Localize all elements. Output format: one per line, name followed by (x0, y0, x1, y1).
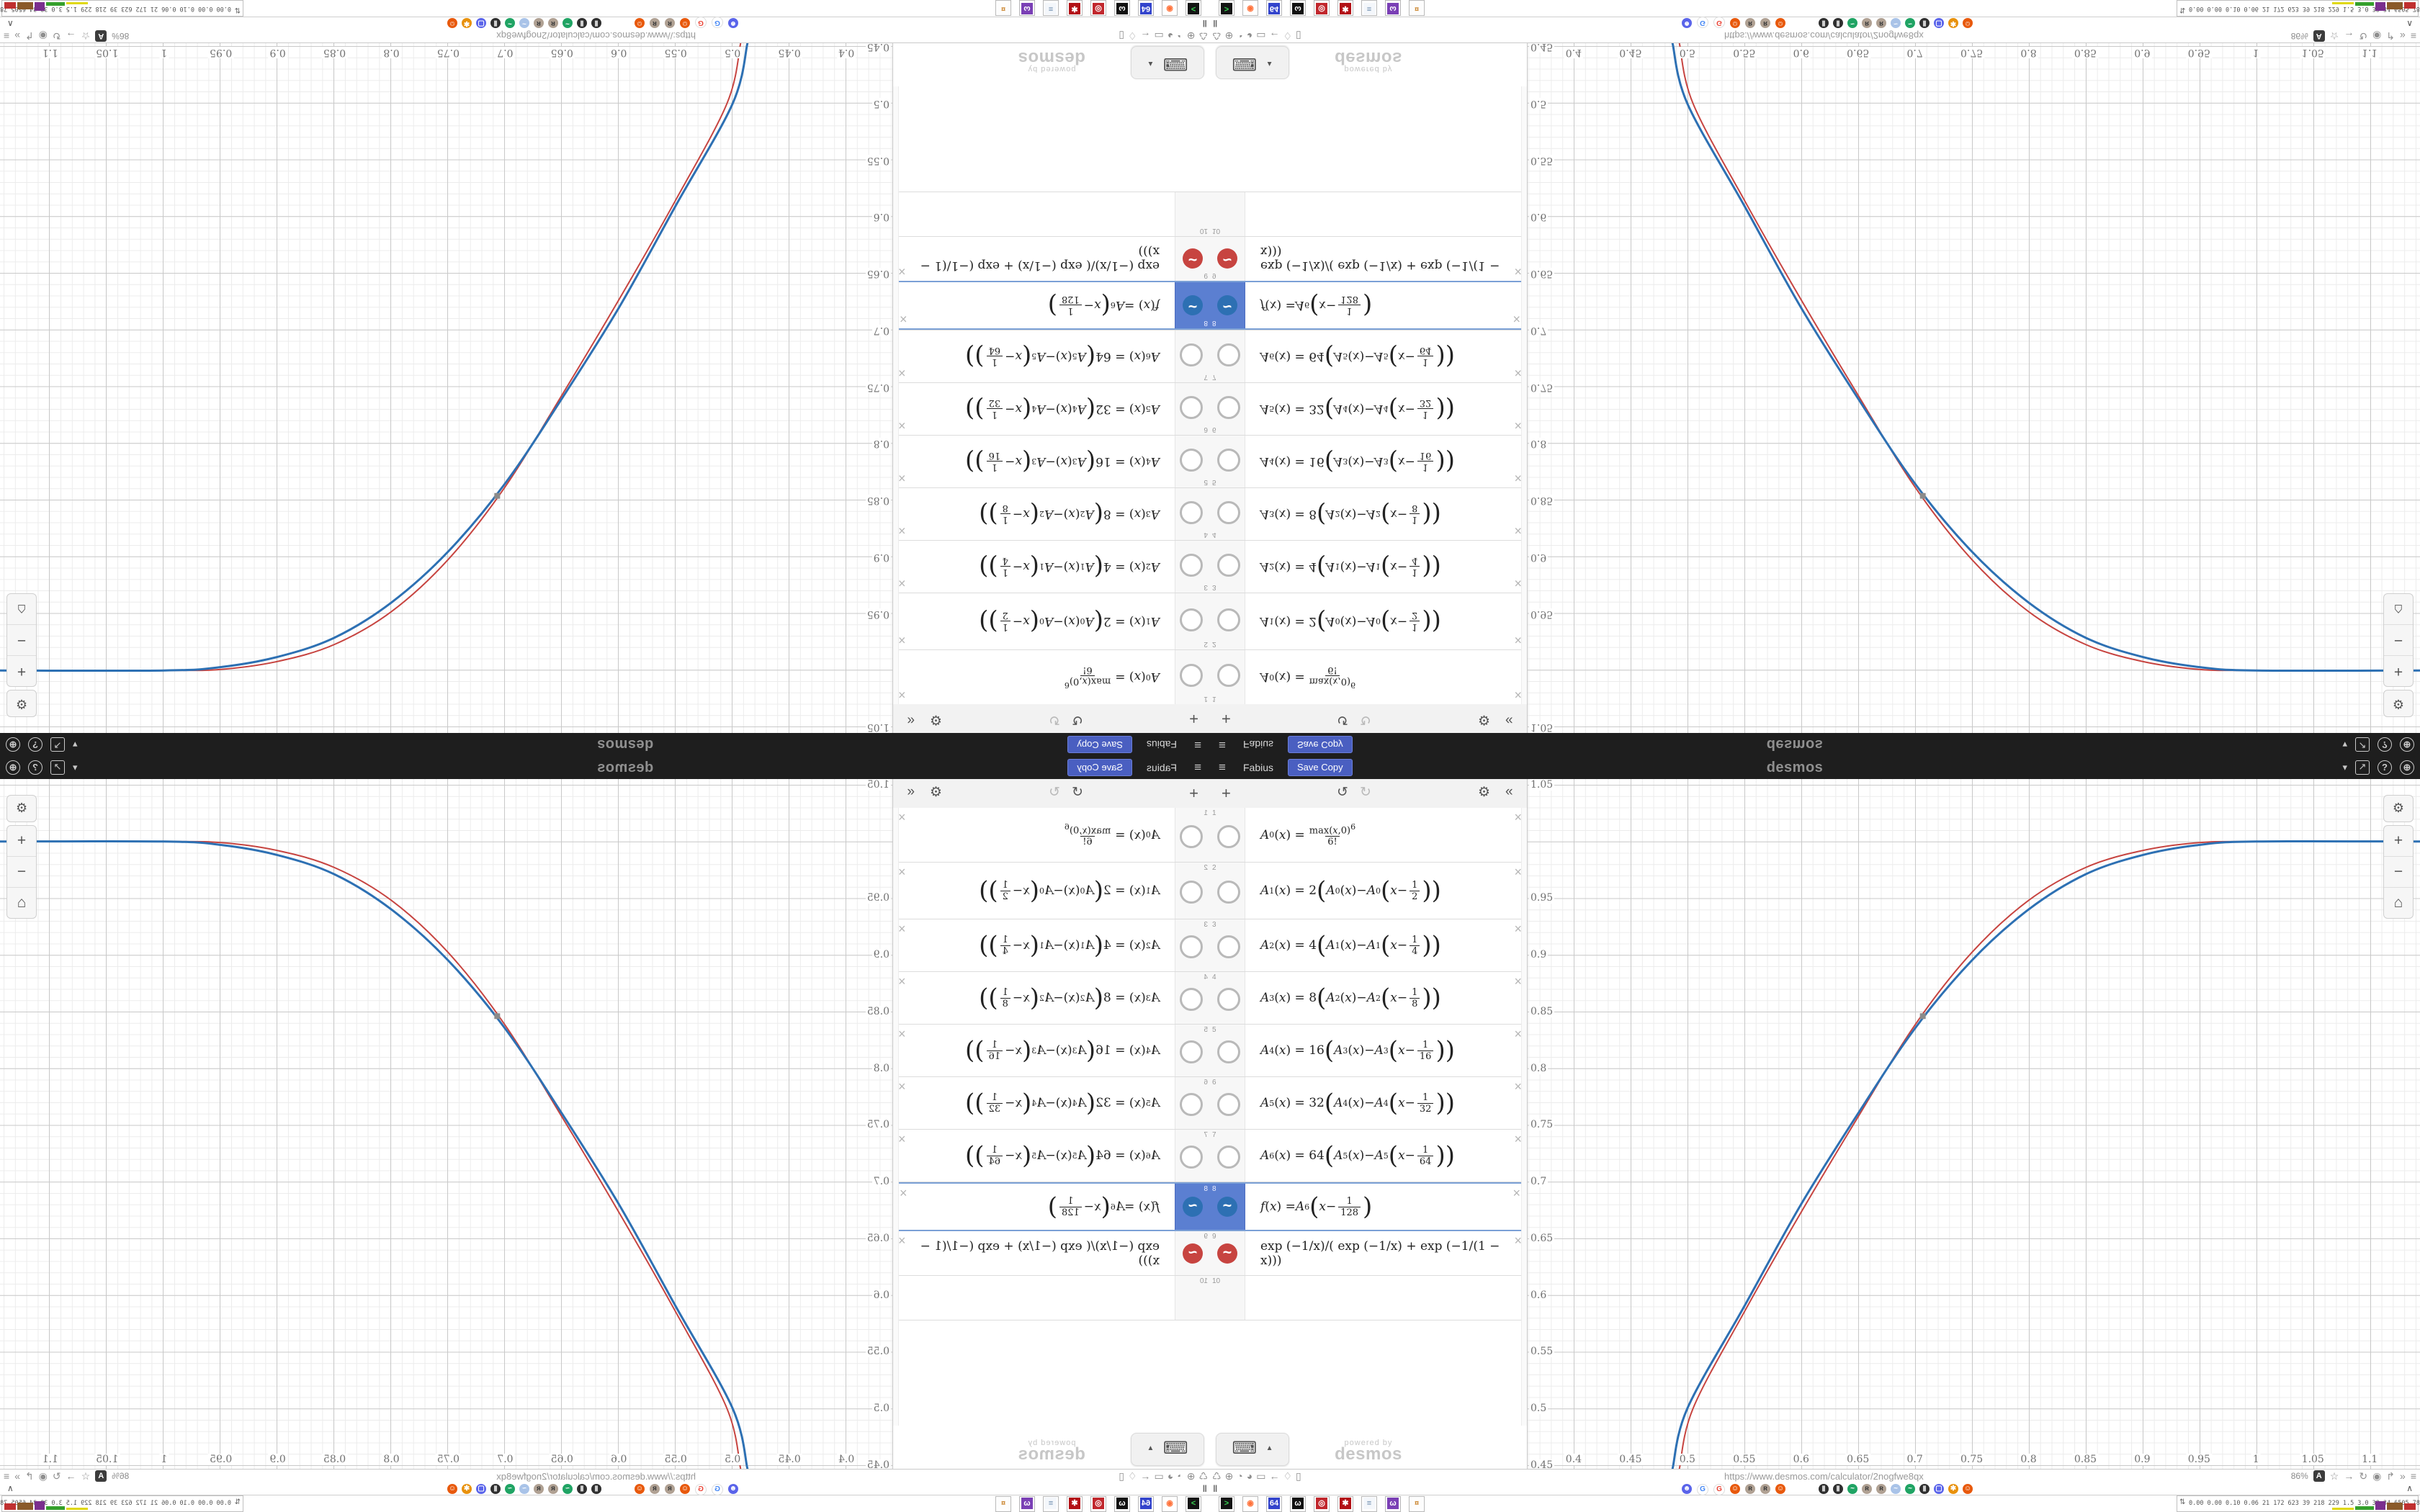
gauge-icon[interactable]: ◔ (1237, 1470, 1242, 1482)
expression-row-1[interactable]: 1A0(x) = max(x,0)66!× (893, 808, 1210, 863)
visibility-toggle-icon[interactable] (1217, 501, 1240, 524)
bin-favicon[interactable]: ▮ (1819, 1484, 1829, 1494)
expression-row-8[interactable]: 8~f (x) = A6(x − 1128)× (1210, 1182, 1527, 1231)
gauge-icon[interactable]: ◕ (1247, 1470, 1252, 1482)
globe-icon[interactable]: ⊕ (6, 737, 20, 752)
help-icon[interactable]: ? (2378, 737, 2392, 752)
translate-icon[interactable]: A (95, 1470, 107, 1482)
zoom-in-button[interactable]: + (7, 656, 36, 686)
add-expression-button[interactable]: + (1222, 709, 1231, 728)
expression-content[interactable] (1245, 192, 1505, 236)
notepad-app-icon[interactable]: ≡ (1043, 0, 1059, 16)
visibility-toggle-icon[interactable] (1180, 988, 1203, 1011)
globe-icon[interactable]: ⊕ (2400, 760, 2414, 775)
expression-content[interactable]: A6(x) = 64(A5(x)−A5(x − 164)) (915, 1130, 1175, 1182)
point-marker[interactable] (1920, 493, 1926, 499)
visibility-toggle-icon[interactable] (1217, 608, 1240, 631)
terminal-app-icon[interactable]: > (1219, 0, 1234, 16)
expression-content[interactable]: f (x) = A6(x − 1128) (1245, 282, 1504, 328)
discord-favicon[interactable]: ☻ (1682, 1484, 1692, 1494)
visibility-toggle-icon[interactable] (1180, 881, 1203, 904)
lock-icon[interactable]: ▯ (1119, 1470, 1124, 1482)
cat-bw-app-icon[interactable]: ω (1114, 1496, 1130, 1512)
add-expression-button[interactable]: + (1189, 709, 1198, 728)
delete-expression-button[interactable]: × (898, 976, 906, 986)
expression-row-1[interactable]: 1A0(x) = max(x,0)66!× (1210, 649, 1527, 704)
visibility-toggle-icon[interactable] (1180, 396, 1203, 419)
translate-icon[interactable]: A (2313, 30, 2325, 42)
raccoon-favicon[interactable]: ʀ (548, 18, 558, 28)
expression-content[interactable]: A6(x) = 64(A5(x)−A5(x − 164)) (1245, 330, 1505, 382)
reload-icon[interactable]: ↻ (2359, 30, 2367, 42)
expression-content[interactable]: A5(x) = 32(A4(x)−A4(x − 132)) (915, 1077, 1175, 1129)
visibility-toggle-icon[interactable]: ~ (1217, 1197, 1237, 1217)
desmos-favicon[interactable]: ~ (505, 1484, 515, 1494)
star-icon[interactable]: ☆ (81, 30, 91, 42)
expression-row-3[interactable]: 3A2(x) = 4(A1(x)−A1(x − 14))× (1210, 540, 1527, 593)
expression-content[interactable]: A3(x) = 8(A2(x)−A2(x − 18)) (915, 972, 1175, 1024)
terminal-app-icon[interactable]: > (1186, 0, 1201, 16)
graph-canvas[interactable]: 0.40.450.50.550.60.650.70.750.80.850.90.… (1528, 779, 2420, 1469)
pause-icon[interactable]: ‖ (1202, 1483, 1207, 1494)
zoom-home-button[interactable]: ⌂ (2384, 594, 2413, 625)
sun-gear-favicon[interactable]: ✱ (462, 18, 472, 28)
star-icon[interactable]: ☆ (81, 1470, 91, 1482)
visibility-toggle-icon[interactable]: ~ (1183, 1197, 1203, 1217)
expression-content[interactable]: A0(x) = max(x,0)66! (1245, 650, 1505, 704)
expression-row-1[interactable]: 1A0(x) = max(x,0)66!× (1210, 808, 1527, 863)
globe-dark-icon[interactable]: ◉ (39, 30, 48, 42)
google-favicon[interactable]: G (1713, 17, 1725, 28)
menu-icon[interactable]: ≡ (4, 1470, 9, 1482)
visibility-toggle-icon[interactable] (1217, 343, 1240, 366)
bird-favicon[interactable]: ~ (1891, 18, 1901, 28)
keyboard-toggle-button[interactable]: ⌨ ▲ (1131, 46, 1204, 79)
menu-icon[interactable]: ≡ (2411, 30, 2416, 42)
visibility-toggle-icon[interactable] (1180, 449, 1203, 472)
delete-expression-button[interactable]: × (898, 1134, 906, 1144)
chat-favicon[interactable]: ▢ (476, 18, 486, 28)
desmos-favicon[interactable]: ~ (1847, 18, 1857, 28)
expression-content[interactable]: A2(x) = 4(A1(x)−A1(x − 14)) (1245, 919, 1505, 971)
expression-content[interactable]: A4(x) = 16(A3(x)−A3(x − 116)) (1245, 1025, 1505, 1076)
visibility-toggle-icon[interactable]: ~ (1183, 249, 1203, 269)
expression-row-3[interactable]: 3A2(x) = 4(A1(x)−A1(x − 14))× (1210, 919, 1527, 972)
visibility-toggle-icon[interactable] (1180, 1146, 1203, 1169)
expression-content[interactable]: A2(x) = 4(A1(x)−A1(x − 14)) (915, 541, 1175, 593)
forward-arrow-icon[interactable]: → (66, 30, 76, 42)
expression-row-10[interactable]: 10 (893, 1276, 1210, 1320)
expression-content[interactable]: A6(x) = 64(A5(x)−A5(x − 164)) (1245, 1130, 1505, 1182)
gauge-icon[interactable]: ◔ (1237, 30, 1242, 42)
keyboard-toggle-button[interactable]: ⌨ ▲ (1216, 46, 1289, 79)
tabbar-collapse-icon[interactable]: ∧ (2406, 1483, 2413, 1493)
forward-arrow-icon[interactable]: → (2344, 30, 2354, 42)
delete-expression-button[interactable]: × (898, 578, 906, 588)
share-icon[interactable]: ↱ (25, 30, 34, 42)
visibility-toggle-icon[interactable] (1217, 396, 1240, 419)
expression-content[interactable]: A4(x) = 16(A3(x)−A3(x − 116)) (1245, 436, 1505, 487)
add-expression-button[interactable]: + (1189, 784, 1198, 803)
delete-expression-button[interactable]: × (898, 1029, 906, 1039)
floppy64-app-icon[interactable]: 64 (1266, 0, 1282, 16)
purple-cat-app-icon[interactable]: ω (1385, 1496, 1401, 1512)
raccoon-favicon[interactable]: ʀ (1760, 1484, 1770, 1494)
reload-icon[interactable]: ↻ (2359, 1470, 2367, 1482)
globe-icon[interactable]: ⊕ (6, 760, 20, 775)
zoom-out-button[interactable]: − (2384, 856, 2413, 887)
delete-expression-button[interactable]: × (898, 266, 906, 276)
chat-favicon[interactable]: ▢ (476, 1484, 486, 1494)
expression-row-6[interactable]: 6A5(x) = 32(A4(x)−A4(x − 132))× (893, 382, 1210, 435)
sun-gear-favicon[interactable]: ✱ (1948, 18, 1958, 28)
graph-settings-wrench-button[interactable]: ⚙ (2383, 795, 2414, 822)
curve-red[interactable] (0, 842, 740, 1469)
discord-favicon[interactable]: ☻ (728, 18, 738, 28)
zoom-out-button[interactable]: − (7, 856, 36, 887)
collapse-panel-button[interactable]: « (907, 784, 915, 800)
save-copy-button[interactable]: Save Copy (1288, 759, 1353, 776)
expression-row-2[interactable]: 2A1(x) = 2(A0(x)−A0(x − 12))× (1210, 863, 1527, 919)
pause-icon[interactable]: ‖ (1213, 18, 1218, 29)
folder-icon[interactable]: ▭ (1256, 1470, 1265, 1482)
keyboard-toggle-button[interactable]: ⌨ ▲ (1131, 1433, 1204, 1466)
undo-button[interactable]: ↺ (1337, 711, 1348, 728)
emoji-face-favicon[interactable]: ☺ (680, 18, 690, 28)
help-icon[interactable]: ? (28, 760, 42, 775)
graph-settings-gear-icon[interactable]: ⚙ (930, 711, 942, 728)
graph-settings-wrench-button[interactable]: ⚙ (2383, 690, 2414, 717)
tabbar-collapse-icon[interactable]: ∧ (7, 1483, 14, 1493)
palette-app-icon[interactable]: ¤ (995, 1496, 1011, 1512)
star-icon[interactable]: ☆ (2330, 1470, 2339, 1482)
trash-icon[interactable]: ♺ (1212, 30, 1222, 42)
expression-content[interactable]: A4(x) = 16(A3(x)−A3(x − 116)) (915, 436, 1175, 487)
bin-favicon[interactable]: ▮ (577, 18, 587, 28)
red-disc-app-icon[interactable]: ◎ (1090, 0, 1106, 16)
red-gear-app-icon[interactable]: ✱ (1067, 1496, 1083, 1512)
globe-icon[interactable]: ⊕ (1225, 30, 1234, 42)
sun-gear-favicon[interactable]: ✱ (462, 1484, 472, 1494)
gauge-icon[interactable]: ◔ (1177, 30, 1183, 42)
globe-icon[interactable]: ⊕ (1187, 30, 1196, 42)
raccoon-favicon[interactable]: ʀ (1862, 1484, 1872, 1494)
zoom-in-button[interactable]: + (2384, 826, 2413, 856)
red-disc-app-icon[interactable]: ◎ (1090, 1496, 1106, 1512)
desmos-favicon[interactable]: ~ (1905, 1484, 1915, 1494)
chevrons-icon[interactable]: » (14, 1470, 20, 1482)
delete-expression-button[interactable]: × (898, 690, 906, 700)
expression-content[interactable]: A5(x) = 32(A4(x)−A4(x − 132)) (1245, 383, 1505, 435)
visibility-toggle-icon[interactable] (1217, 1093, 1240, 1116)
shield-icon[interactable]: ♢ (1283, 1470, 1292, 1482)
curve-red[interactable] (0, 44, 740, 671)
export-icon[interactable]: ↗ (2355, 737, 2370, 752)
red-disc-app-icon[interactable]: ◎ (1314, 1496, 1330, 1512)
expression-content[interactable]: A1(x) = 2(A0(x)−A0(x − 12)) (915, 593, 1175, 649)
zoom-in-button[interactable]: + (7, 826, 36, 856)
delete-expression-button[interactable]: × (900, 1188, 907, 1198)
hamburger-menu-icon[interactable]: ≡ (1219, 761, 1226, 773)
expression-row-9[interactable]: 9~exp (−1/x)/( exp (−1/x) + exp (−1/(1 −… (893, 1231, 1210, 1276)
google-favicon[interactable]: G (1713, 1484, 1725, 1495)
expression-content[interactable]: f (x) = A6(x − 1128) (916, 1184, 1175, 1230)
palette-app-icon[interactable]: ¤ (1409, 0, 1425, 16)
back-arrow-icon[interactable]: ← (1141, 30, 1151, 42)
shield-icon[interactable]: ♢ (1128, 1470, 1137, 1482)
raccoon-favicon[interactable]: ʀ (1862, 18, 1872, 28)
trash-icon[interactable]: ♺ (1198, 30, 1208, 42)
visibility-toggle-icon[interactable] (1217, 554, 1240, 577)
caret-down-icon[interactable]: ▾ (73, 739, 78, 750)
visibility-toggle-icon[interactable] (1180, 1040, 1203, 1063)
bird-favicon[interactable]: ~ (519, 1484, 529, 1494)
terminal-app-icon[interactable]: > (1219, 1496, 1234, 1512)
terminal-app-icon[interactable]: > (1186, 1496, 1201, 1512)
lock-icon[interactable]: ▯ (1119, 30, 1124, 42)
visibility-toggle-icon[interactable] (1217, 1040, 1240, 1063)
google-favicon[interactable]: G (1697, 1484, 1708, 1495)
delete-expression-button[interactable]: × (898, 867, 906, 877)
delete-expression-button[interactable]: × (898, 635, 906, 645)
delete-expression-button[interactable]: × (898, 924, 906, 934)
collapse-panel-button[interactable]: « (1505, 784, 1513, 800)
expression-row-4[interactable]: 4A3(x) = 8(A2(x)−A2(x − 18))× (893, 972, 1210, 1025)
expression-content[interactable]: A3(x) = 8(A2(x)−A2(x − 18)) (1245, 972, 1505, 1024)
expression-content[interactable]: A1(x) = 2(A0(x)−A0(x − 12)) (1245, 593, 1505, 649)
point-marker[interactable] (1920, 1013, 1926, 1019)
visibility-toggle-icon[interactable] (1180, 825, 1203, 848)
globe-dark-icon[interactable]: ◉ (2372, 1470, 2381, 1482)
emoji-face-favicon[interactable]: ☺ (1775, 1484, 1785, 1494)
save-copy-button[interactable]: Save Copy (1067, 736, 1132, 753)
graph-settings-gear-icon[interactable]: ⚙ (930, 784, 942, 801)
point-marker[interactable] (494, 493, 500, 499)
lock-icon[interactable]: ▯ (1296, 1470, 1301, 1482)
translate-icon[interactable]: A (2313, 1470, 2325, 1482)
emoji-face-favicon[interactable]: ☺ (1730, 1484, 1740, 1494)
export-icon[interactable]: ↗ (50, 737, 65, 752)
firefox-app-icon[interactable]: ◉ (1162, 0, 1178, 16)
curve-blue[interactable] (0, 841, 748, 1468)
visibility-toggle-icon[interactable]: ~ (1217, 1243, 1237, 1264)
trash-icon[interactable]: ♺ (1198, 1470, 1208, 1482)
notepad-app-icon[interactable]: ≡ (1361, 1496, 1377, 1512)
expression-row-6[interactable]: 6A5(x) = 32(A4(x)−A4(x − 132))× (1210, 382, 1527, 435)
expression-content[interactable]: exp (−1/x)/( exp (−1/x) + exp (−1/(1 − x… (915, 1231, 1175, 1275)
delete-expression-button[interactable]: × (898, 473, 906, 483)
redo-button[interactable]: ↻ (1049, 784, 1060, 801)
palette-app-icon[interactable]: ¤ (995, 0, 1011, 16)
back-arrow-icon[interactable]: ← (1141, 1470, 1151, 1482)
expression-row-5[interactable]: 5A4(x) = 16(A3(x)−A3(x − 116))× (893, 435, 1210, 487)
expression-content[interactable]: exp (−1/x)/( exp (−1/x) + exp (−1/(1 − x… (915, 237, 1175, 281)
red-gear-app-icon[interactable]: ✱ (1337, 1496, 1353, 1512)
expression-content[interactable]: A4(x) = 16(A3(x)−A3(x − 116)) (915, 1025, 1175, 1076)
raccoon-favicon[interactable]: ʀ (534, 18, 544, 28)
expression-row-10[interactable]: 10 (893, 192, 1210, 236)
red-gear-app-icon[interactable]: ✱ (1337, 0, 1353, 16)
bin-favicon[interactable]: ▮ (1919, 1484, 1930, 1494)
expression-content[interactable]: A1(x) = 2(A0(x)−A0(x − 12)) (1245, 863, 1505, 919)
expression-row-7[interactable]: 7A6(x) = 64(A5(x)−A5(x − 164))× (1210, 1130, 1527, 1182)
bin-favicon[interactable]: ▮ (490, 18, 501, 28)
visibility-toggle-icon[interactable] (1217, 935, 1240, 958)
shield-icon[interactable]: ♢ (1128, 30, 1137, 42)
caret-down-icon[interactable]: ▾ (2342, 762, 2347, 773)
expression-row-8[interactable]: 8~f (x) = A6(x − 1128)× (1210, 281, 1527, 330)
bin-favicon[interactable]: ▮ (591, 18, 601, 28)
expression-row-10[interactable]: 10 (1210, 192, 1527, 236)
globe-dark-icon[interactable]: ◉ (2372, 30, 2381, 42)
expression-row-6[interactable]: 6A5(x) = 32(A4(x)−A4(x − 132))× (1210, 1077, 1527, 1130)
redo-button[interactable]: ↻ (1360, 784, 1371, 801)
visibility-toggle-icon[interactable] (1180, 665, 1203, 688)
zoom-home-button[interactable]: ⌂ (2384, 887, 2413, 918)
google-favicon[interactable]: G (1697, 17, 1708, 28)
expression-row-10[interactable]: 10 (1210, 1276, 1527, 1320)
delete-expression-button[interactable]: × (898, 526, 906, 536)
raccoon-favicon[interactable]: ʀ (1876, 18, 1886, 28)
expression-row-4[interactable]: 4A3(x) = 8(A2(x)−A2(x − 18))× (1210, 972, 1527, 1025)
floppy64-app-icon[interactable]: 64 (1138, 0, 1154, 16)
delete-expression-button[interactable]: × (898, 420, 906, 431)
delete-expression-button[interactable]: × (898, 368, 906, 378)
star-icon[interactable]: ☆ (2330, 30, 2339, 42)
bin-favicon[interactable]: ▮ (577, 1484, 587, 1494)
folder-icon[interactable]: ▭ (1256, 30, 1265, 42)
raccoon-favicon[interactable]: ʀ (1760, 18, 1770, 28)
help-icon[interactable]: ? (2378, 760, 2392, 775)
panel-scrollbar[interactable] (1521, 808, 1527, 1426)
hamburger-menu-icon[interactable]: ≡ (1194, 761, 1201, 773)
bin-favicon[interactable]: ▮ (490, 1484, 501, 1494)
panel-scrollbar[interactable] (893, 808, 899, 1426)
expression-content[interactable]: A6(x) = 64(A5(x)−A5(x − 164)) (915, 330, 1175, 382)
raccoon-favicon[interactable]: ʀ (1745, 1484, 1755, 1494)
gauge-icon[interactable]: ◔ (1177, 1470, 1183, 1482)
firefox-app-icon[interactable]: ◉ (1162, 1496, 1178, 1512)
expression-row-9[interactable]: 9~exp (−1/x)/( exp (−1/x) + exp (−1/(1 −… (1210, 1231, 1527, 1276)
point-marker[interactable] (494, 1013, 500, 1019)
redo-button[interactable]: ↻ (1049, 711, 1060, 728)
zoom-out-button[interactable]: − (7, 625, 36, 656)
bin-favicon[interactable]: ▮ (1833, 1484, 1843, 1494)
expression-row-3[interactable]: 3A2(x) = 4(A1(x)−A1(x − 14))× (893, 919, 1210, 972)
tabbar-collapse-icon[interactable]: ∧ (2406, 19, 2413, 29)
emoji-face-favicon[interactable]: ☺ (1730, 18, 1740, 28)
bin-favicon[interactable]: ▮ (1833, 18, 1843, 28)
notepad-app-icon[interactable]: ≡ (1361, 0, 1377, 16)
desmos-favicon[interactable]: ~ (1905, 18, 1915, 28)
gauge-icon[interactable]: ◕ (1247, 30, 1252, 42)
gauge-icon[interactable]: ◕ (1168, 1470, 1173, 1482)
emoji-face-favicon[interactable]: ☺ (447, 1484, 457, 1494)
visibility-toggle-icon[interactable]: ~ (1217, 295, 1237, 315)
raccoon-favicon[interactable]: ʀ (1876, 1484, 1886, 1494)
expression-row-5[interactable]: 5A4(x) = 16(A3(x)−A3(x − 116))× (1210, 435, 1527, 487)
google-favicon[interactable]: G (712, 17, 723, 28)
reload-icon[interactable]: ↻ (53, 1470, 61, 1482)
expression-row-5[interactable]: 5A4(x) = 16(A3(x)−A3(x − 116))× (1210, 1025, 1527, 1077)
visibility-toggle-icon[interactable] (1180, 608, 1203, 631)
graph-canvas[interactable]: 0.40.450.50.550.60.650.70.750.80.850.90.… (1528, 43, 2420, 733)
visibility-toggle-icon[interactable] (1180, 1093, 1203, 1116)
expression-content[interactable]: f (x) = A6(x − 1128) (1245, 1184, 1504, 1230)
graph-settings-wrench-button[interactable]: ⚙ (6, 795, 37, 822)
expression-row-7[interactable]: 7A6(x) = 64(A5(x)−A5(x − 164))× (1210, 330, 1527, 382)
save-copy-button[interactable]: Save Copy (1067, 759, 1132, 776)
translate-icon[interactable]: A (95, 30, 107, 42)
reload-icon[interactable]: ↻ (53, 30, 61, 42)
discord-favicon[interactable]: ☻ (728, 1484, 738, 1494)
delete-expression-button[interactable]: × (1512, 1188, 1520, 1198)
delete-expression-button[interactable]: × (898, 1081, 906, 1092)
globe-icon[interactable]: ⊕ (2400, 737, 2414, 752)
delete-expression-button[interactable]: × (1512, 314, 1520, 324)
expression-content[interactable]: A2(x) = 4(A1(x)−A1(x − 14)) (1245, 541, 1505, 593)
expression-content[interactable]: A5(x) = 32(A4(x)−A4(x − 132)) (1245, 1077, 1505, 1129)
expression-row-2[interactable]: 2A1(x) = 2(A0(x)−A0(x − 12))× (893, 863, 1210, 919)
curve-blue[interactable] (0, 44, 748, 671)
chevrons-icon[interactable]: » (14, 30, 20, 42)
trash-icon[interactable]: ♺ (1212, 1470, 1222, 1482)
undo-button[interactable]: ↺ (1072, 711, 1083, 728)
undo-button[interactable]: ↺ (1072, 784, 1083, 801)
cat-bw-app-icon[interactable]: ω (1290, 1496, 1306, 1512)
visibility-toggle-icon[interactable] (1217, 988, 1240, 1011)
emoji-face-favicon[interactable]: ☺ (1775, 18, 1785, 28)
red-disc-app-icon[interactable]: ◎ (1314, 0, 1330, 16)
visibility-toggle-icon[interactable] (1217, 449, 1240, 472)
panel-scrollbar[interactable] (893, 86, 899, 704)
purple-cat-app-icon[interactable]: ω (1019, 0, 1035, 16)
floppy64-app-icon[interactable]: 64 (1138, 1496, 1154, 1512)
chat-favicon[interactable]: ▢ (1934, 1484, 1944, 1494)
expression-content[interactable]: A3(x) = 8(A2(x)−A2(x − 18)) (915, 488, 1175, 540)
globe-icon[interactable]: ⊕ (1187, 1470, 1196, 1482)
raccoon-favicon[interactable]: ʀ (650, 18, 660, 28)
discord-favicon[interactable]: ☻ (1682, 18, 1692, 28)
visibility-toggle-icon[interactable]: ~ (1183, 1243, 1203, 1264)
notepad-app-icon[interactable]: ≡ (1043, 1496, 1059, 1512)
desmos-favicon[interactable]: ~ (563, 1484, 573, 1494)
google-favicon[interactable]: G (712, 1484, 723, 1495)
menu-icon[interactable]: ≡ (2411, 1470, 2416, 1482)
graph-canvas[interactable]: 0.40.450.50.550.60.650.70.750.80.850.90.… (0, 779, 892, 1469)
hamburger-menu-icon[interactable]: ≡ (1194, 739, 1201, 751)
gauge-icon[interactable]: ◕ (1168, 30, 1173, 42)
chat-favicon[interactable]: ▢ (1934, 18, 1944, 28)
expression-row-6[interactable]: 6A5(x) = 32(A4(x)−A4(x − 132))× (893, 1077, 1210, 1130)
emoji-face-favicon[interactable]: ☺ (1963, 18, 1973, 28)
back-arrow-icon[interactable]: ← (1269, 30, 1279, 42)
expression-content[interactable]: exp (−1/x)/( exp (−1/x) + exp (−1/(1 − x… (1245, 1231, 1505, 1275)
raccoon-favicon[interactable]: ʀ (665, 18, 675, 28)
bin-favicon[interactable]: ▮ (1919, 18, 1930, 28)
expression-row-7[interactable]: 7A6(x) = 64(A5(x)−A5(x − 164))× (893, 1130, 1210, 1182)
collapse-panel-button[interactable]: « (1505, 712, 1513, 728)
visibility-toggle-icon[interactable] (1217, 825, 1240, 848)
lock-icon[interactable]: ▯ (1296, 30, 1301, 42)
desmos-favicon[interactable]: ~ (563, 18, 573, 28)
expression-row-4[interactable]: 4A3(x) = 8(A2(x)−A2(x − 18))× (893, 487, 1210, 540)
expression-row-9[interactable]: 9~exp (−1/x)/( exp (−1/x) + exp (−1/(1 −… (1210, 236, 1527, 281)
google-favicon[interactable]: G (695, 1484, 707, 1495)
caret-down-icon[interactable]: ▾ (2342, 739, 2347, 750)
floppy64-app-icon[interactable]: 64 (1266, 1496, 1282, 1512)
red-gear-app-icon[interactable]: ✱ (1067, 0, 1083, 16)
